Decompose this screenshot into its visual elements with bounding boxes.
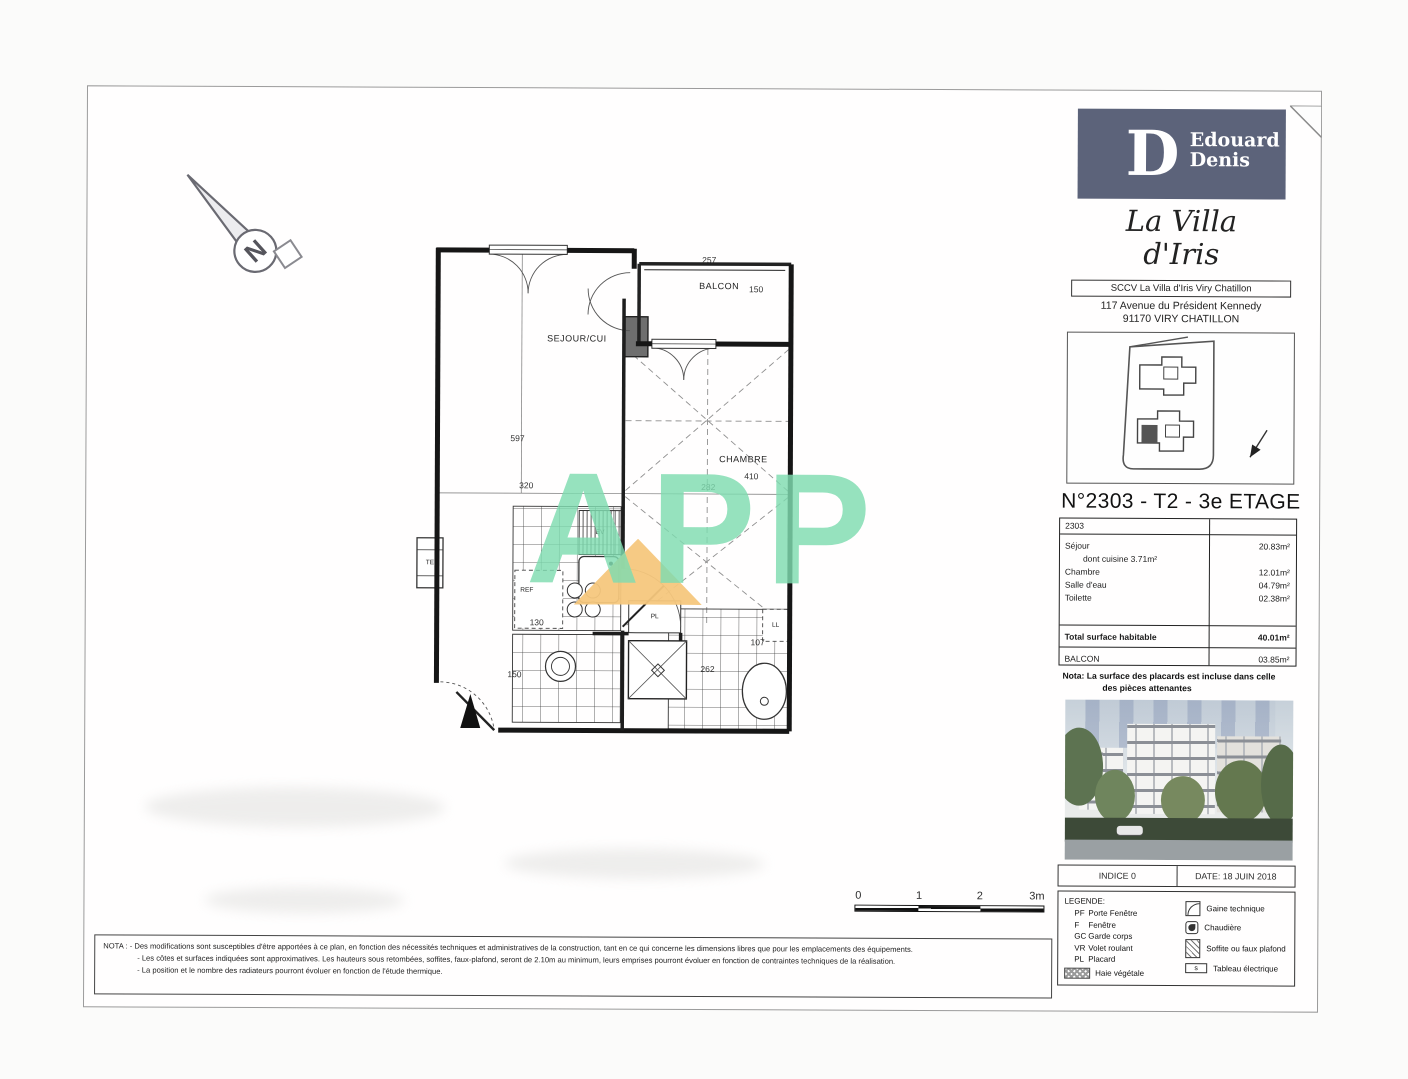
tree: [1161, 776, 1205, 824]
project-title-line2: d'Iris: [1060, 238, 1302, 272]
dim-kitchen-width: 130: [530, 617, 544, 627]
floor-plan-drawing: [412, 238, 814, 755]
row-label: Salle d'eau: [1065, 579, 1107, 592]
dim-bath-width: 262: [700, 664, 714, 674]
legend-abbr: GC: [1064, 931, 1088, 943]
dim-bath-depth: 107: [750, 637, 764, 647]
dim-chambre-height: 410: [744, 471, 758, 481]
legend-symbol-label: Soffite ou faux plafond: [1206, 944, 1286, 953]
total-label: Total surface habitable: [1065, 626, 1157, 647]
row-label: Chambre: [1065, 566, 1100, 579]
hedge-icon: [1064, 967, 1090, 978]
scan-smudge: [145, 787, 445, 828]
developer-logo: D Edouard Denis: [1078, 109, 1286, 200]
legend-symbol-label: Tableau électrique: [1213, 964, 1278, 973]
plan-sheet: N: [83, 85, 1322, 1012]
indice-cell: INDICE 0: [1059, 866, 1177, 887]
legend-label: Placard: [1088, 954, 1115, 966]
row-label: Séjour: [1065, 540, 1090, 553]
building-rendering: [1065, 700, 1294, 861]
legend: LEGENDE: PFPorte Fenêtre FFenêtre GCGard…: [1057, 891, 1295, 987]
scale-tick-0: 0: [855, 890, 861, 902]
bottom-nota: NOTA : - Des modifications sont suscepti…: [94, 934, 1052, 998]
fixture-label-placard: PL: [651, 613, 659, 620]
row-value: 02.38m²: [1213, 592, 1290, 605]
row-value: [1213, 553, 1290, 566]
table-nota: Nota: La surface des placards est inclus…: [1062, 671, 1300, 695]
unit-title: N°2303 - T2 - 3e ETAGE: [1061, 490, 1301, 515]
legend-label-haie: Haie végétale: [1095, 968, 1144, 977]
date-cell: DATE: 18 JUIN 2018: [1176, 866, 1295, 887]
fixture-label-washer: LL: [772, 622, 779, 629]
boiler-icon: [1185, 921, 1198, 934]
project-title: La Villa d'Iris: [1060, 205, 1302, 273]
site-key-plan: [1066, 332, 1295, 485]
indice-date-row: INDICE 0 DATE: 18 JUIN 2018: [1058, 865, 1296, 888]
scale-tick-3: 3m: [1029, 890, 1044, 902]
car: [1117, 826, 1143, 835]
scan-smudge: [505, 848, 765, 879]
dim-balcon-width: 257: [702, 255, 716, 265]
title-block: D Edouard Denis La Villa d'Iris SCCV La …: [1057, 107, 1303, 987]
table-unit-number: 2303: [1065, 519, 1084, 534]
address-line1: 117 Avenue du Président Kennedy: [1060, 299, 1302, 314]
room-label-sejour: SEJOUR/CUI: [547, 333, 607, 343]
scale-tick-2: 2: [977, 890, 983, 902]
room-label-balcon: BALCON: [699, 281, 739, 291]
table-nota-line2: des pièces attenantes: [1062, 682, 1300, 695]
compass-needle-group: N: [172, 153, 304, 292]
tree: [1215, 760, 1267, 822]
legend-abbr: VR: [1064, 942, 1088, 954]
row-label: dont cuisine 3.71m²: [1065, 553, 1157, 566]
legend-symbol-label: Chaudière: [1204, 923, 1241, 932]
dim-balcon-depth: 150: [749, 284, 763, 294]
floor-plan: SEJOUR/CUI BALCON CHAMBRE 257 150 597 32…: [412, 238, 814, 755]
scale-tick-1: 1: [916, 890, 922, 902]
legend-label: Garde corps: [1088, 931, 1132, 943]
company-name: SCCV La Villa d'Iris Viry Chatillon: [1071, 279, 1291, 297]
row-label: Toilette: [1065, 592, 1092, 605]
legend-abbr: PL: [1064, 954, 1088, 966]
north-arrow: N: [157, 145, 308, 296]
scan-smudge: [204, 887, 404, 914]
dim-chambre-width: 282: [701, 482, 715, 492]
total-value: 40.01m²: [1213, 626, 1290, 647]
surface-table: 2303 Séjour 20.83m² dont cuisine 3.71m² …: [1058, 518, 1297, 667]
address-line2: 91170 VIRY CHATILLON: [1060, 313, 1302, 328]
fixture-label-sink: EV: [596, 529, 605, 536]
tree: [1095, 770, 1135, 822]
legend-label: Porte Fenêtre: [1088, 908, 1137, 920]
legend-label: Volet roulant: [1088, 942, 1133, 954]
legend-abbr: PF: [1064, 908, 1088, 920]
row-value: 20.83m²: [1213, 540, 1290, 553]
duct-icon: [1185, 901, 1200, 916]
dim-entry-width: 150: [507, 669, 521, 679]
dim-sejour-height: 597: [510, 433, 524, 443]
legend-title: LEGENDE:: [1064, 897, 1185, 907]
road: [1065, 840, 1293, 861]
electrical-panel-icon: s: [1185, 963, 1207, 973]
logo-brand-line2: Denis: [1190, 151, 1280, 171]
legend-symbol-label: Gaine technique: [1206, 904, 1264, 913]
fixture-label-fridge: REF: [520, 587, 533, 594]
legend-label: Fenêtre: [1088, 919, 1116, 931]
page-fold-mark: [1290, 106, 1322, 138]
project-title-line1: La Villa: [1060, 205, 1302, 239]
scale-bar: 0 1 2 3m: [854, 890, 1044, 921]
scale-bar-segments: [854, 905, 1044, 913]
soffit-icon: [1185, 939, 1200, 958]
row-value: 12.01m²: [1213, 566, 1290, 579]
room-label-chambre: CHAMBRE: [719, 454, 768, 464]
legend-abbr: F: [1064, 919, 1088, 931]
tree: [1261, 745, 1294, 825]
balcony-value: 03.85m²: [1213, 648, 1290, 672]
logo-initial: D: [1126, 117, 1180, 190]
balcony-label: BALCON: [1064, 648, 1099, 672]
row-value: 04.79m²: [1213, 579, 1290, 592]
fixture-label-te: TE: [426, 559, 434, 566]
dim-sejour-width: 320: [519, 480, 533, 490]
